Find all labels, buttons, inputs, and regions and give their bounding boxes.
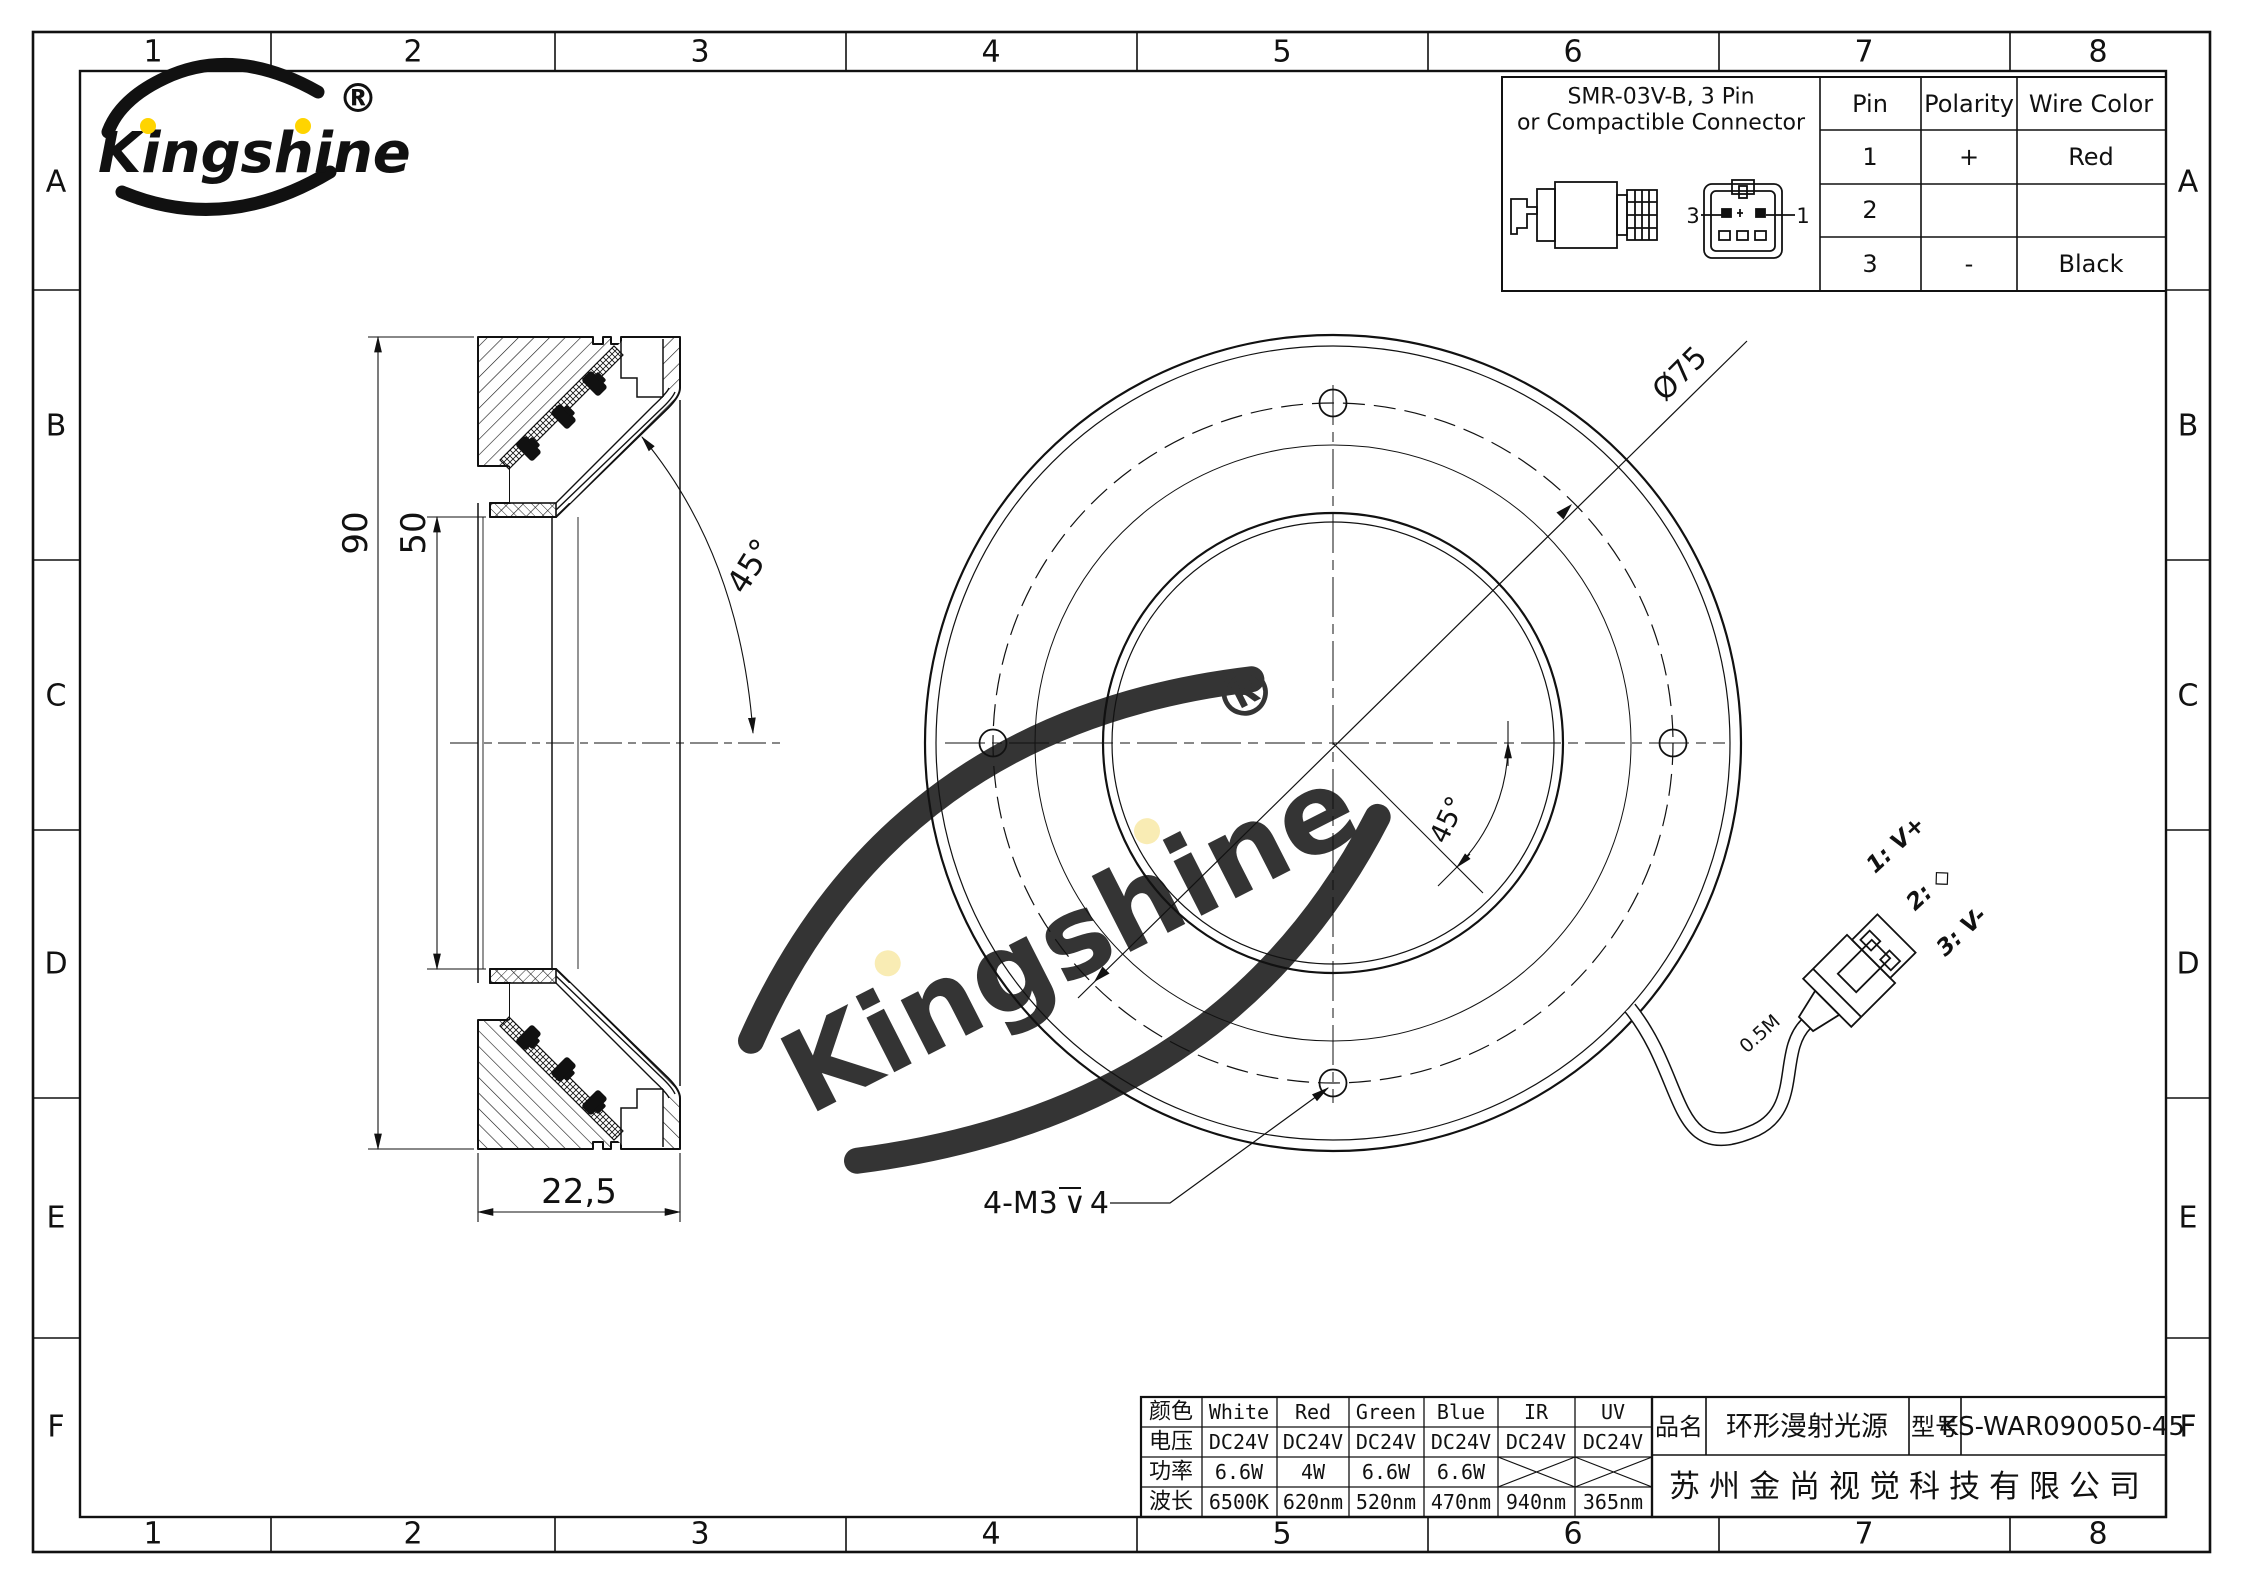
cable-length-label: 0.5M xyxy=(1735,1010,1784,1058)
grid-row-label: F xyxy=(47,1410,64,1445)
spec-cell: 940nm xyxy=(1506,1490,1566,1514)
connector-side-view-drawing xyxy=(1511,182,1657,248)
svg-text:50: 50 xyxy=(394,511,434,554)
grid-col-label: 4 xyxy=(981,35,1000,70)
spec-cell: 6500K xyxy=(1209,1490,1269,1514)
connector-front-view-drawing xyxy=(1701,180,1795,258)
dim-50: 50 xyxy=(394,511,486,969)
title-name-label: 品名 xyxy=(1655,1413,1703,1441)
grid-col-label: 7 xyxy=(1854,35,1873,70)
spec-cell: DC24V xyxy=(1283,1430,1343,1454)
spec-cell: 6.6W xyxy=(1362,1460,1411,1484)
svg-text:3: V-: 3: V- xyxy=(1932,902,1993,961)
logo-registered-icon: ® xyxy=(338,76,378,122)
border-frame: 1 2 3 4 5 6 7 8 1 2 3 4 5 6 7 8 A B C D … xyxy=(33,32,2210,1552)
spec-cell: Blue xyxy=(1437,1400,1485,1424)
svg-text:1: V+: 1: V+ xyxy=(1861,812,1930,879)
grid-col-label: 7 xyxy=(1854,1517,1873,1552)
pin-table-header: Polarity xyxy=(1924,90,2014,118)
spec-cell: Green xyxy=(1356,1400,1416,1424)
grid-col-label: 2 xyxy=(403,35,422,70)
spec-cell: DC24V xyxy=(1356,1430,1416,1454)
grid-row-label: A xyxy=(46,165,67,200)
grid-col-label: 6 xyxy=(1563,35,1582,70)
dim-22-5: 22,5 xyxy=(478,1153,680,1222)
spec-cell: DC24V xyxy=(1583,1430,1643,1454)
grid-row-label: E xyxy=(2179,1201,2198,1236)
grid-row-label: E xyxy=(47,1201,66,1236)
connector-pin-labels: 1: V+ 2: ◇ 3: V- xyxy=(1861,812,1992,962)
cable: 0.5M xyxy=(1630,1008,1806,1139)
watermark-logo: Kingshine ® xyxy=(687,616,1431,1222)
company-name: 苏州金尚视觉科技有限公司 xyxy=(1669,1469,2149,1505)
spec-cell: 4W xyxy=(1301,1460,1326,1484)
spec-cell: DC24V xyxy=(1506,1430,1566,1454)
grid-col-label: 4 xyxy=(981,1517,1000,1552)
title-model-value: KS-WAR090050-45 xyxy=(1941,1412,2185,1442)
spec-cell: 520nm xyxy=(1356,1490,1416,1514)
grid-row-label: A xyxy=(2178,165,2199,200)
spec-row-label: 颜色 xyxy=(1149,1400,1193,1425)
connector-pin1-label: 1 xyxy=(1796,204,1809,228)
spec-cell: 620nm xyxy=(1283,1490,1343,1514)
spec-cell: 6.6W xyxy=(1215,1460,1264,1484)
svg-text:45°: 45° xyxy=(719,532,781,600)
pin-table-cell: Red xyxy=(2068,143,2114,171)
grid-row-label: B xyxy=(2178,409,2199,444)
spec-cell: IR xyxy=(1524,1400,1549,1424)
svg-text:4-M3∨4: 4-M3∨4 xyxy=(983,1186,1109,1221)
spec-row-label: 波长 xyxy=(1149,1490,1193,1515)
grid-col-label: 3 xyxy=(690,35,709,70)
grid-col-label: 3 xyxy=(690,1517,709,1552)
spec-cell: 365nm xyxy=(1583,1490,1643,1514)
grid-row-label: C xyxy=(2178,679,2199,714)
pin-table-cell: Black xyxy=(2059,250,2124,278)
grid-row-label: C xyxy=(46,679,67,714)
spec-cell: Red xyxy=(1295,1400,1331,1424)
spec-table: 颜色 电压 功率 波长 White Red Green Blue IR UV D… xyxy=(1141,1397,1652,1517)
grid-col-label: 8 xyxy=(2088,1517,2107,1552)
grid-col-label: 2 xyxy=(403,1517,422,1552)
grid-col-label: 6 xyxy=(1563,1517,1582,1552)
grid-col-label: 5 xyxy=(1272,35,1291,70)
grid-row-label: D xyxy=(44,947,67,982)
spec-cell: DC24V xyxy=(1431,1430,1491,1454)
connector-title: or Compactible Connector xyxy=(1517,111,1806,136)
pin-table-cell: 1 xyxy=(1862,143,1877,171)
title-name-value: 环形漫射光源 xyxy=(1726,1412,1888,1443)
pin-table-header: Pin xyxy=(1852,90,1888,118)
svg-text:Ø75: Ø75 xyxy=(1646,340,1714,408)
dim-45-section: 45° xyxy=(642,437,781,733)
grid-row-label: B xyxy=(46,409,67,444)
svg-text:90: 90 xyxy=(336,511,376,554)
watermark-registered: ® xyxy=(1200,647,1291,742)
spec-cell: UV xyxy=(1601,1400,1625,1424)
pin-table-cell: + xyxy=(1959,143,1979,171)
svg-text:2: ◇: 2: ◇ xyxy=(1902,862,1957,916)
pin-table-header: Wire Color xyxy=(2029,90,2153,118)
spec-row-label: 电压 xyxy=(1149,1430,1193,1455)
connector-info-box: SMR-03V-B, 3 Pin or Compactible Connecto… xyxy=(1502,77,2166,291)
pin-table-cell: 3 xyxy=(1862,250,1877,278)
kingshine-logo: Kingshine ® xyxy=(98,64,411,209)
drawing-canvas: Kingshine ® 1 2 3 4 5 6 7 8 1 2 3 xyxy=(0,0,2245,1587)
drawing-sheet: Kingshine ® 1 2 3 4 5 6 7 8 1 2 3 xyxy=(0,0,2245,1587)
grid-col-label: 1 xyxy=(143,35,162,70)
connector-title: SMR-03V-B, 3 Pin xyxy=(1567,85,1754,110)
logo-i-dot xyxy=(140,118,156,134)
spec-row-label: 功率 xyxy=(1149,1460,1193,1485)
svg-text:22,5: 22,5 xyxy=(541,1172,617,1212)
connector-pin3-label: 3 xyxy=(1686,204,1699,228)
grid-col-label: 1 xyxy=(143,1517,162,1552)
pin-table-cell: - xyxy=(1965,250,1974,278)
grid-col-label: 8 xyxy=(2088,35,2107,70)
spec-cell: 470nm xyxy=(1431,1490,1491,1514)
spec-cell: DC24V xyxy=(1209,1430,1269,1454)
spec-cell: White xyxy=(1209,1400,1269,1424)
logo-i-dot xyxy=(295,118,311,134)
grid-row-label: D xyxy=(2176,947,2199,982)
pin-table-cell: 2 xyxy=(1862,196,1877,224)
svg-text:45°: 45° xyxy=(1424,792,1472,848)
dim-bolt-circle: Ø75 xyxy=(1078,340,1747,998)
grid-col-label: 5 xyxy=(1272,1517,1291,1552)
title-block: 品名 环形漫射光源 型号 KS-WAR090050-45 苏州金尚视觉科技有限公… xyxy=(1652,1397,2185,1517)
section-view: 90 50 22,5 45° xyxy=(336,337,781,1222)
spec-cell: 6.6W xyxy=(1437,1460,1486,1484)
